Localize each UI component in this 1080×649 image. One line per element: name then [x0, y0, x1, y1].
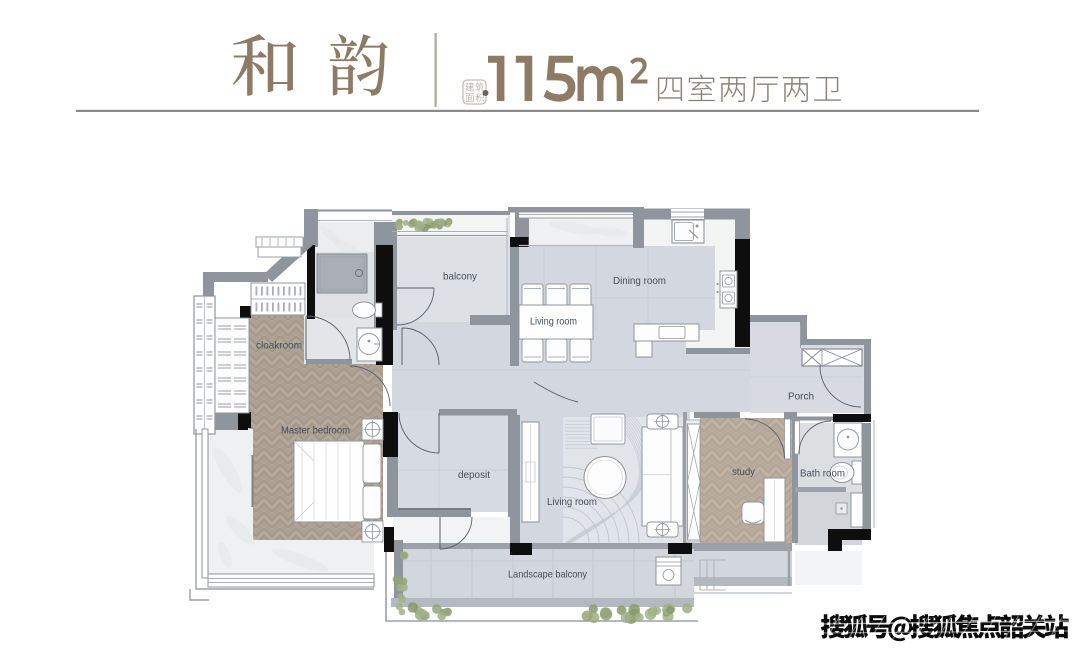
svg-text:Bath room: Bath room	[800, 468, 845, 480]
svg-text:deposit: deposit	[458, 469, 490, 481]
svg-text:Porch: Porch	[788, 391, 814, 403]
svg-text:Landscape balcony: Landscape balcony	[508, 569, 588, 581]
svg-text:Living room: Living room	[530, 316, 577, 328]
svg-text:Dining room: Dining room	[613, 275, 666, 287]
svg-text:cloakroom: cloakroom	[256, 340, 302, 352]
svg-text:balcony: balcony	[443, 271, 478, 283]
svg-text:Master bedroom: Master bedroom	[281, 425, 350, 437]
svg-text:Living room: Living room	[547, 496, 597, 508]
svg-text:study: study	[732, 466, 756, 478]
